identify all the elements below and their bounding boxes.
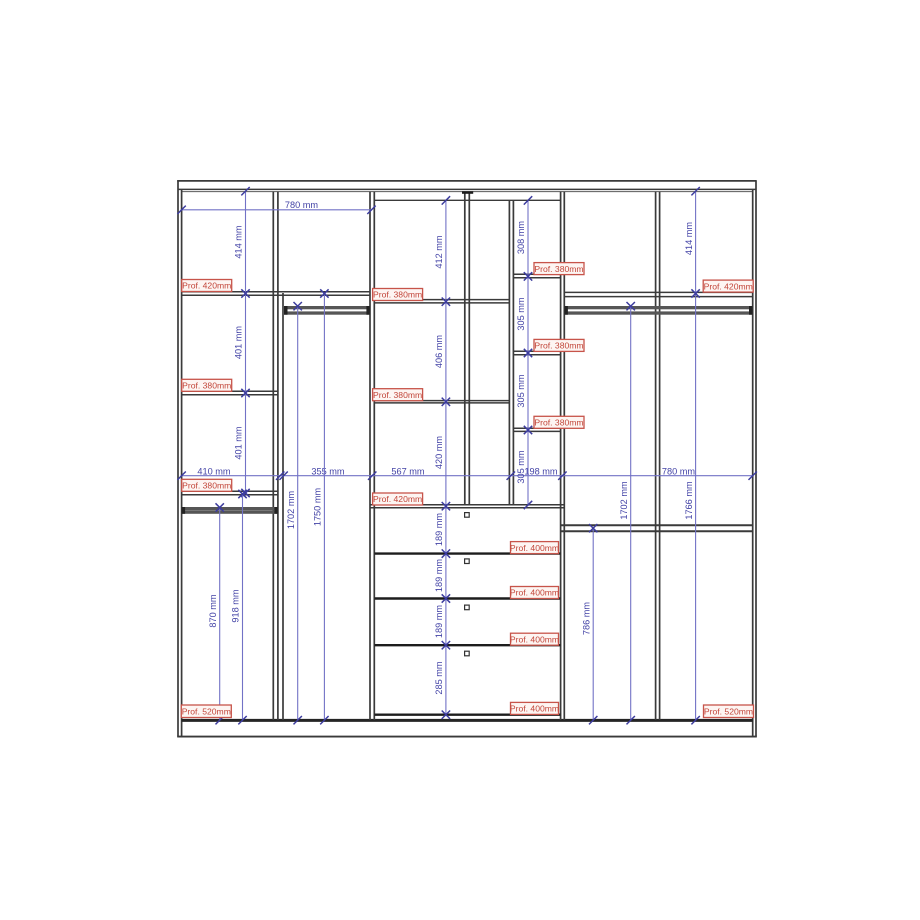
svg-text:414 mm: 414 mm — [234, 225, 244, 259]
svg-text:198 mm: 198 mm — [524, 467, 558, 477]
svg-text:1702 mm: 1702 mm — [619, 481, 629, 520]
svg-text:305 mm: 305 mm — [516, 297, 526, 331]
svg-text:Prof. 380mm: Prof. 380mm — [373, 390, 422, 400]
svg-text:401 mm: 401 mm — [234, 326, 244, 360]
svg-text:406 mm: 406 mm — [434, 335, 444, 369]
svg-text:Prof. 420mm: Prof. 420mm — [704, 281, 753, 291]
svg-text:780 mm: 780 mm — [285, 200, 319, 210]
svg-text:Prof. 520mm: Prof. 520mm — [704, 707, 753, 717]
svg-text:189 mm: 189 mm — [434, 559, 444, 593]
svg-text:189 mm: 189 mm — [434, 513, 444, 547]
svg-text:918 mm: 918 mm — [231, 589, 241, 623]
svg-text:Prof. 400mm: Prof. 400mm — [510, 704, 559, 714]
svg-text:Prof. 380mm: Prof. 380mm — [373, 290, 422, 300]
svg-text:780 mm: 780 mm — [662, 467, 696, 477]
svg-text:Prof. 400mm: Prof. 400mm — [510, 543, 559, 553]
svg-text:567 mm: 567 mm — [391, 467, 425, 477]
svg-text:Prof. 380mm: Prof. 380mm — [182, 381, 231, 391]
svg-text:1766 mm: 1766 mm — [684, 481, 694, 520]
svg-text:Prof. 420mm: Prof. 420mm — [373, 494, 422, 504]
svg-text:Prof. 420mm: Prof. 420mm — [182, 281, 231, 291]
svg-text:1702 mm: 1702 mm — [286, 491, 296, 530]
svg-text:Prof. 380mm: Prof. 380mm — [534, 418, 583, 428]
svg-text:355 mm: 355 mm — [311, 467, 345, 477]
svg-text:870 mm: 870 mm — [208, 594, 218, 628]
svg-text:285 mm: 285 mm — [434, 661, 444, 695]
svg-text:414 mm: 414 mm — [684, 222, 694, 256]
svg-text:786 mm: 786 mm — [581, 602, 591, 636]
svg-text:305 mm: 305 mm — [516, 450, 526, 484]
svg-text:Prof. 520mm: Prof. 520mm — [182, 707, 231, 717]
svg-text:412 mm: 412 mm — [434, 235, 444, 269]
svg-text:Prof. 400mm: Prof. 400mm — [510, 634, 559, 644]
svg-text:189 mm: 189 mm — [434, 605, 444, 639]
svg-text:Prof. 380mm: Prof. 380mm — [182, 481, 231, 491]
svg-text:401 mm: 401 mm — [234, 426, 244, 460]
svg-text:Prof. 380mm: Prof. 380mm — [534, 341, 583, 351]
svg-text:1750 mm: 1750 mm — [313, 488, 323, 527]
svg-text:Prof. 400mm: Prof. 400mm — [510, 588, 559, 598]
svg-text:420 mm: 420 mm — [434, 436, 444, 470]
svg-text:410 mm: 410 mm — [197, 467, 231, 477]
svg-text:Prof. 380mm: Prof. 380mm — [534, 264, 583, 274]
svg-text:308 mm: 308 mm — [516, 221, 526, 255]
svg-text:305 mm: 305 mm — [516, 374, 526, 408]
